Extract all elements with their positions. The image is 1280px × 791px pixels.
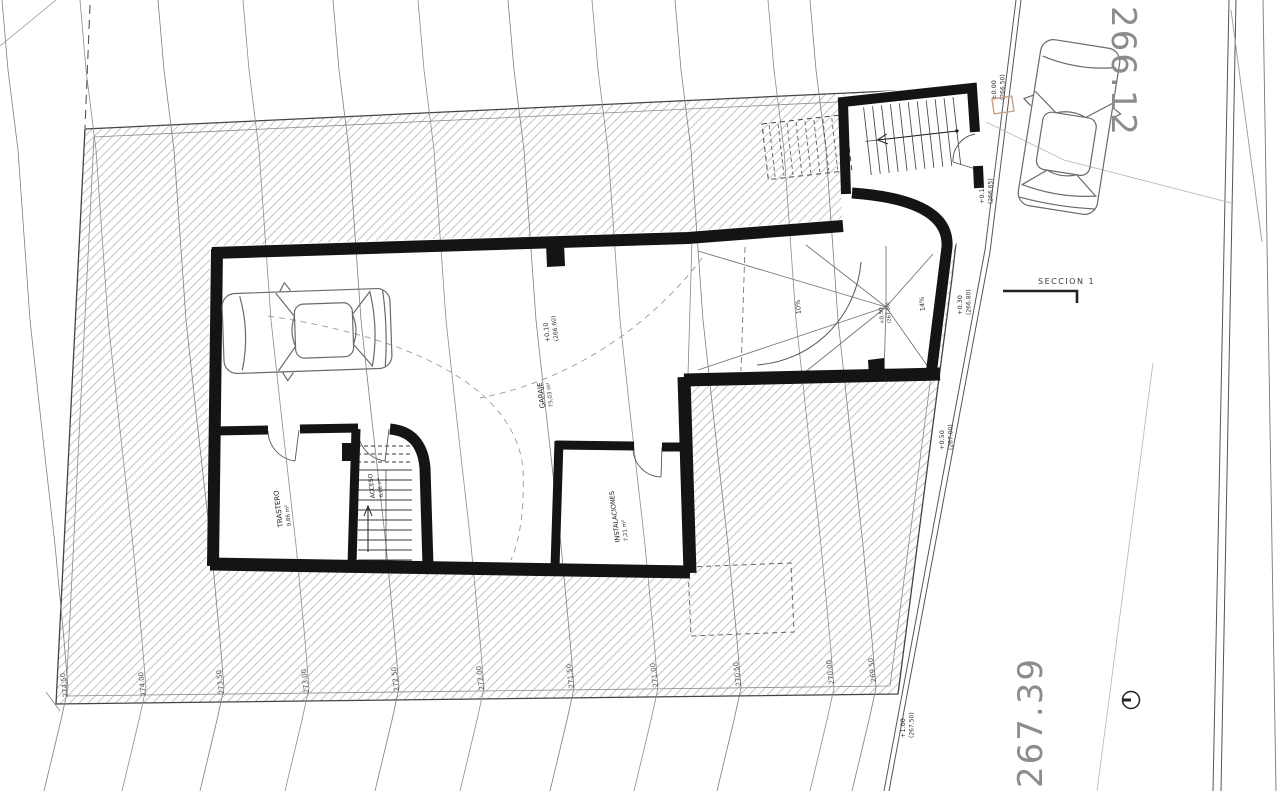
street-spot-elevation: ±0.00(266.50) [990, 74, 1007, 100]
street-level-top: 266.12 [1103, 6, 1143, 137]
room-label-garaje: GARAJE75,03 m² [536, 381, 555, 409]
elevation-value: ±0.00 [990, 80, 998, 100]
ramp-slope-label: 10% [794, 299, 803, 314]
site-plan-sheet: 274.50274.00273.50273.00272.50272.00271.… [0, 0, 1280, 791]
elevation-datum: (266.80) [966, 289, 973, 315]
elevation-value: +0.50 [938, 430, 946, 450]
ramp-slope-label: 14% [918, 296, 927, 311]
street-spot-elevation: +1.00(267.50) [899, 712, 916, 738]
site-plan-drawing: 274.50274.00273.50273.00272.50272.00271.… [0, 0, 1280, 791]
street-spot-elevation: +0.50(267.00) [938, 424, 955, 450]
section-marker: SECCION 1 [1003, 277, 1095, 303]
elevation-datum: (267.00) [948, 424, 955, 450]
elevation-datum: (267.50) [909, 712, 916, 738]
elevation-value: +0.30 [956, 295, 964, 315]
elevation-value: +1.00 [899, 718, 907, 738]
street-spot-elevation: +0.30(266.80) [956, 289, 973, 315]
site-misc-lines [0, 0, 90, 128]
section-label: SECCION 1 [1038, 277, 1095, 286]
elevation-datum: (266.65) [988, 178, 995, 204]
street-level-bottom: 267.39 [1011, 657, 1051, 788]
section-line [1003, 291, 1077, 303]
elevation-datum: (266.50) [1000, 74, 1007, 100]
elevation-value: +0.15 [978, 184, 986, 204]
survey-point-marker [1123, 692, 1140, 709]
